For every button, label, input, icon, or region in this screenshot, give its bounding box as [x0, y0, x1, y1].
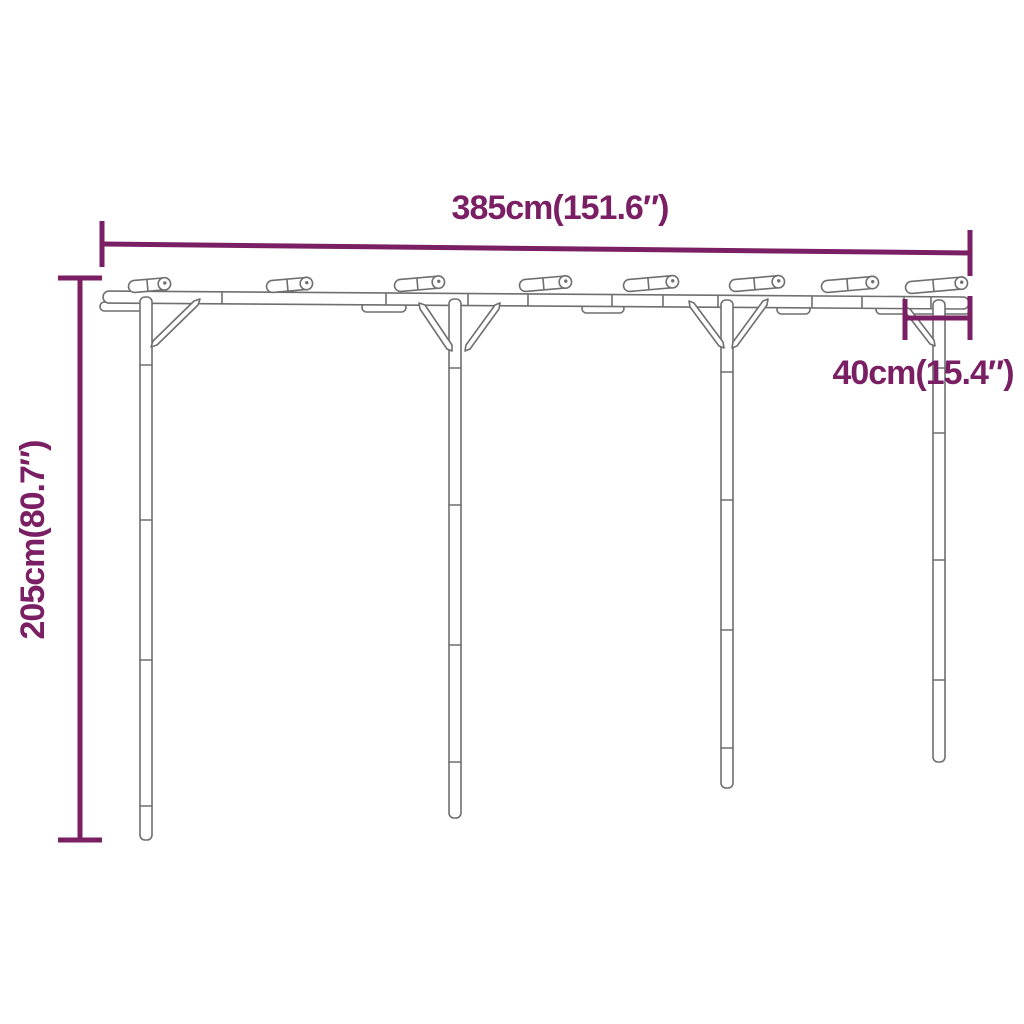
depth-dimension-label: 40cm(15.4″) [832, 354, 1013, 392]
pergola-rafter [821, 276, 879, 293]
pergola-brace [151, 299, 200, 347]
pergola-rafter [519, 275, 572, 292]
pergola-brace [419, 303, 452, 351]
pergola-dimension-diagram: 385cm(151.6″) 205cm(80.7″) 40cm(15.4″) [0, 0, 1024, 1024]
height-dimension-label: 205cm(80.7″) [14, 441, 52, 640]
height-dimension-line [58, 278, 102, 840]
product-diagram-canvas: 385cm(151.6″) 205cm(80.7″) 40cm(15.4″) [0, 0, 1024, 1024]
pergola-rafter [266, 277, 313, 293]
pergola-rafter [905, 276, 968, 294]
pergola-top-beam [103, 291, 969, 309]
pergola-post [449, 299, 461, 818]
pergola-rafter [623, 275, 679, 292]
width-dimension-line [102, 221, 970, 276]
width-dimension-label: 385cm(151.6″) [452, 189, 669, 227]
pergola-rafter [128, 277, 171, 293]
pergola-brace [465, 303, 500, 351]
pergola-rafter [729, 275, 785, 292]
pergola-rafter [394, 275, 445, 292]
pergola-post [721, 300, 733, 788]
pergola-post [140, 297, 152, 840]
